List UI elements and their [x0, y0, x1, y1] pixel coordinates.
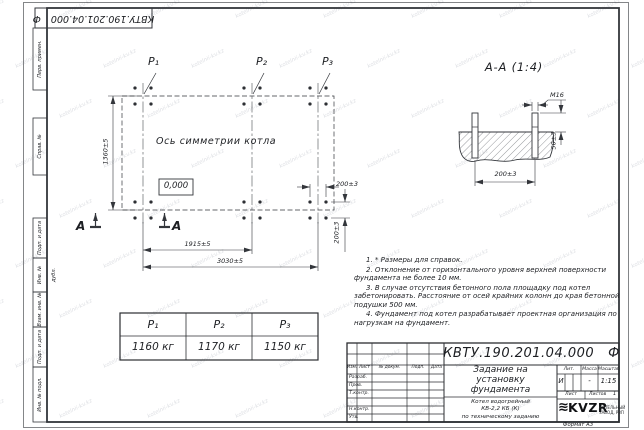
- loads-table-value-p1: 1160 кг: [120, 342, 186, 354]
- mass-value: -: [581, 378, 598, 386]
- scale-label: Масштаб: [598, 367, 619, 372]
- doc-title-line-3: фундамента: [444, 386, 557, 396]
- lit-value: И: [557, 378, 565, 386]
- dim-bolt-pitch-x-label: 200±3: [336, 181, 358, 188]
- dim-height-label: 1360±5: [102, 131, 109, 173]
- designation-text: КВТУ.190.201.04.000: [443, 347, 594, 361]
- top-designation-suffix: Ф: [33, 13, 41, 23]
- rev-col-podp: Подп.: [407, 366, 429, 371]
- section-cut-marks: [90, 213, 170, 227]
- rev-col-list: Лист: [357, 366, 372, 371]
- plan-point-label-p2: P₂: [256, 56, 267, 68]
- lit-label: Лит.: [557, 367, 581, 372]
- section-letter-left: А: [76, 220, 85, 233]
- dim-bolt-pitch-y-label: 200±3: [333, 216, 340, 250]
- top-designation-stamp: КВТУ.190.201.04.000 Ф: [35, 8, 152, 28]
- plan-point-label-p3: P₃: [322, 56, 333, 68]
- bolt-thread-label: М16: [550, 92, 564, 99]
- rev-col-data: Дата: [429, 366, 444, 371]
- role-prov: Пров.: [349, 383, 362, 388]
- company-name: КОТЕЛЬНЫЙ ЗАВОД, РЗП: [599, 405, 625, 415]
- loads-table-header-p1: P₁: [120, 319, 186, 331]
- section-view-title: А-А (1:4): [468, 61, 560, 74]
- role-tkontr: Т.контр.: [349, 391, 369, 396]
- note-3: 3. В случае отсутствия бетонного пола пл…: [354, 284, 638, 310]
- product-line-2: КВ-2,2 КБ (К): [444, 406, 557, 413]
- sheets-label: Листов: [589, 392, 606, 397]
- section-letter-right: А: [172, 220, 181, 233]
- margin-label-podp-data-1: Подп. и дата: [33, 218, 47, 258]
- loads-table-value-p3: 1150 кг: [252, 342, 318, 354]
- margin-label-inv-dubl: Инв. № дубл.: [33, 258, 47, 292]
- note-4: 4. Фундамент под котел разрабатывает про…: [354, 310, 638, 327]
- format-label: Формат А3: [548, 423, 608, 429]
- anchor-bolt-dots: [134, 87, 328, 220]
- dim-span-p1p2-label: 1915±5: [170, 241, 225, 248]
- drawing-sheet: kotelnii-kv.kzkotelnii-kv.kzkotelnii-kv.…: [0, 0, 644, 430]
- loads-table-header-p3: P₃: [252, 319, 318, 331]
- sheet-label: Лист: [557, 392, 585, 397]
- margin-label-vzam-inv: Взам. инв. №: [33, 292, 47, 327]
- boiler-symmetry-axis-label: Ось симметрии котла: [156, 137, 276, 147]
- scale-value: 1:15: [598, 378, 619, 386]
- rev-col-dokum: № докум.: [372, 366, 407, 371]
- sheets-value: 1: [613, 392, 616, 398]
- company-name-line-2: ЗАВОД, РЗП: [599, 410, 625, 415]
- title-block-designation: КВТУ.190.201.04.000 Ф: [444, 343, 619, 365]
- note-1: 1. * Размеры для справок.: [354, 256, 638, 265]
- dim-span-total-label: 3030±5: [200, 258, 260, 265]
- dim-protrusion-label: 50±3: [550, 125, 557, 157]
- level-mark: 0,000: [159, 182, 193, 191]
- dim-section-bolt-pitch-label: 200±3: [483, 171, 528, 178]
- mass-label: Масса: [581, 367, 598, 372]
- loads-table-header-p2: P₂: [186, 319, 252, 331]
- loads-table-value-p2: 1170 кг: [186, 342, 252, 354]
- product-line-1: Котел водогрейный: [444, 399, 557, 406]
- doc-title: Задание на установку фундамента: [444, 366, 557, 396]
- role-utv: Утв.: [349, 415, 359, 420]
- margin-label-sprav-n: Справ. №: [33, 118, 47, 175]
- margin-label-inv-podl: Инв. № подл.: [33, 367, 47, 422]
- notes-block: 1. * Размеры для справок. 2. Отклонение …: [354, 256, 638, 328]
- designation-suffix: Ф: [608, 347, 620, 361]
- role-razrab: Разраб.: [349, 375, 367, 380]
- margin-label-perv-primen: Перв. примен.: [33, 28, 47, 90]
- margin-label-podp-data-2: Подп. и дата: [33, 327, 47, 367]
- rev-col-izm: Изм.: [347, 366, 357, 371]
- product-line-3: по техническому заданию: [444, 414, 557, 421]
- top-designation-text: КВТУ.190.201.04.000: [51, 13, 154, 23]
- plan-point-label-p1: P₁: [148, 56, 159, 68]
- product-name: Котел водогрейный КВ-2,2 КБ (К) по техни…: [444, 399, 557, 421]
- role-nkontr: Н.контр.: [349, 407, 370, 412]
- note-2: 2. Отклонение от горизонтального уровня …: [354, 266, 638, 283]
